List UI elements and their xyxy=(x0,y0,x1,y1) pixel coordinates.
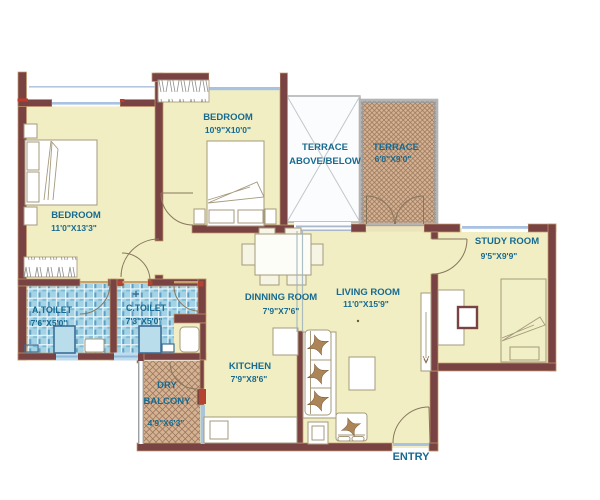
svg-text:ABOVE/BELOW: ABOVE/BELOW xyxy=(289,156,361,167)
svg-text:BEDROOM: BEDROOM xyxy=(203,112,253,123)
svg-text:9'5"X9'9": 9'5"X9'9" xyxy=(481,251,518,261)
svg-text:DRY: DRY xyxy=(157,380,177,391)
svg-text:10'9"X10'0": 10'9"X10'0" xyxy=(205,125,251,135)
svg-text:C.TOILET: C.TOILET xyxy=(126,303,167,313)
svg-text:A.TOILET: A.TOILET xyxy=(32,305,73,315)
svg-text:11'0"X15'9": 11'0"X15'9" xyxy=(343,299,389,309)
svg-text:7'9"X8'6": 7'9"X8'6" xyxy=(231,374,268,384)
svg-text:BALCONY: BALCONY xyxy=(144,396,192,407)
svg-text:TERRACE: TERRACE xyxy=(373,142,419,153)
svg-text:11'0"X13'3": 11'0"X13'3" xyxy=(51,223,97,233)
svg-text:KITCHEN: KITCHEN xyxy=(229,361,271,372)
svg-text:4'9"X6'3": 4'9"X6'3" xyxy=(148,418,185,428)
svg-text:DINNING ROOM: DINNING ROOM xyxy=(245,292,317,303)
svg-text:STUDY ROOM: STUDY ROOM xyxy=(475,236,539,247)
svg-text:7'3"X5'0": 7'3"X5'0" xyxy=(126,316,163,326)
svg-text:LIVING ROOM: LIVING ROOM xyxy=(336,287,400,298)
svg-text:ENTRY: ENTRY xyxy=(393,451,431,463)
svg-text:6'0"X9'0": 6'0"X9'0" xyxy=(375,154,412,164)
svg-text:7'6"X5'0": 7'6"X5'0" xyxy=(31,318,68,328)
svg-text:TERRACE: TERRACE xyxy=(302,142,348,153)
svg-text:7'9"X7'6": 7'9"X7'6" xyxy=(263,306,300,316)
svg-text:BEDROOM: BEDROOM xyxy=(51,210,101,221)
